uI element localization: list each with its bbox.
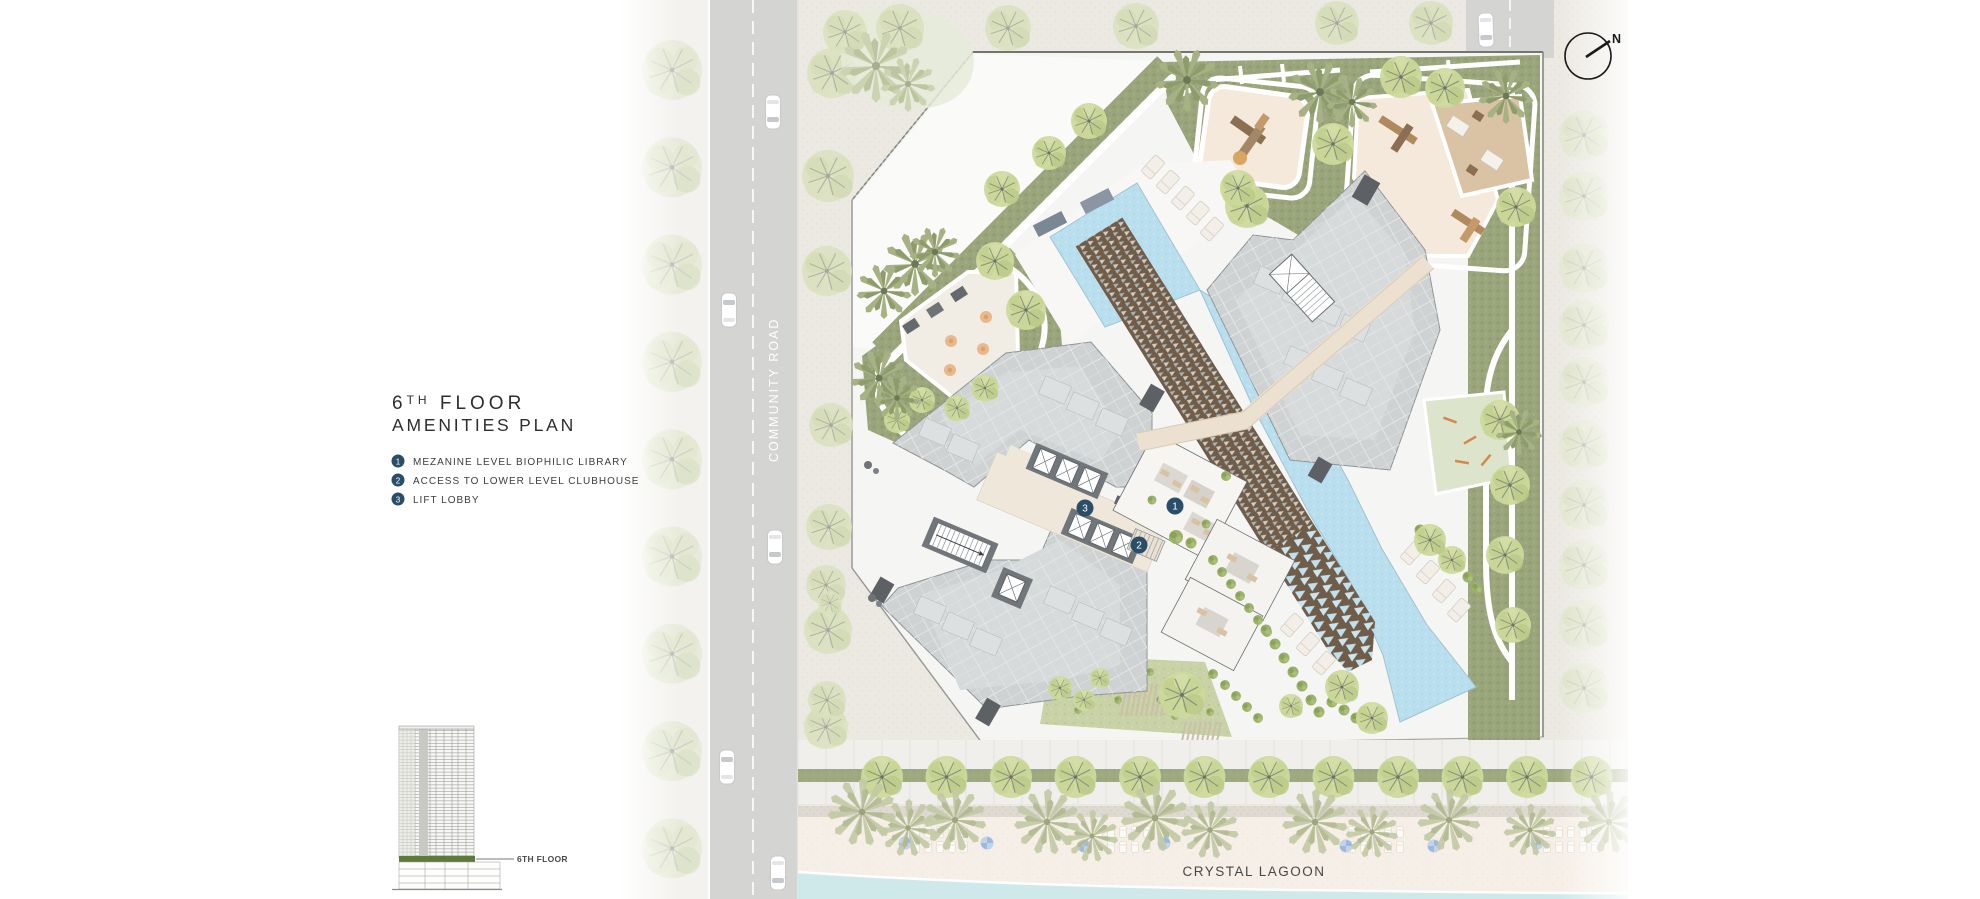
svg-text:3: 3: [396, 496, 401, 505]
svg-text:1: 1: [396, 458, 401, 467]
svg-text:AMENITIES PLAN: AMENITIES PLAN: [392, 415, 576, 435]
svg-text:1: 1: [1172, 502, 1178, 513]
svg-text:3: 3: [1082, 504, 1088, 515]
svg-text:6TH FLOOR: 6TH FLOOR: [517, 854, 568, 864]
svg-text:ACCESS TO LOWER LEVEL CLUBHOUS: ACCESS TO LOWER LEVEL CLUBHOUSE: [413, 476, 639, 487]
svg-text:LIFT LOBBY: LIFT LOBBY: [413, 495, 480, 506]
svg-text:2: 2: [396, 477, 401, 486]
svg-text:MEZANINE LEVEL BIOPHILIC LIBRA: MEZANINE LEVEL BIOPHILIC LIBRARY: [413, 457, 628, 468]
svg-text:N: N: [1612, 32, 1621, 46]
svg-text:CRYSTAL LAGOON: CRYSTAL LAGOON: [1182, 864, 1325, 879]
svg-text:COMMUNITY ROAD: COMMUNITY ROAD: [767, 318, 781, 462]
svg-text:2: 2: [1136, 541, 1142, 552]
